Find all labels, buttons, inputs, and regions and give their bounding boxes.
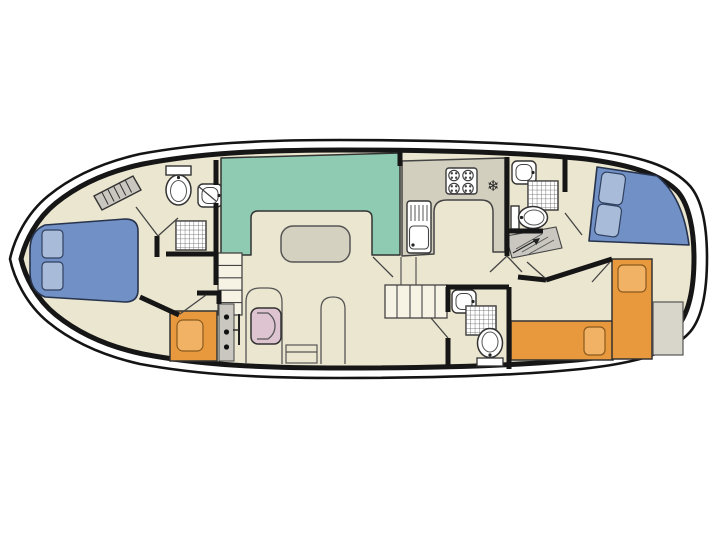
galley-sink bbox=[407, 201, 431, 253]
shower bbox=[528, 181, 558, 210]
helm-chair bbox=[251, 308, 281, 344]
galley-stairs bbox=[385, 285, 447, 318]
bed-pillow bbox=[584, 327, 605, 355]
freezer-snowflake-icon: ❄ bbox=[487, 177, 500, 195]
toilet bbox=[511, 206, 548, 229]
dinette bbox=[221, 153, 400, 262]
toilet bbox=[477, 329, 503, 367]
boat-floor-plan-canvas: ❄ bbox=[0, 0, 720, 541]
toilet bbox=[166, 166, 191, 205]
bed-pillow bbox=[618, 265, 646, 292]
aft-bed-pillow bbox=[594, 203, 622, 237]
bow-bed-pillow bbox=[42, 262, 63, 290]
shower bbox=[176, 221, 206, 250]
aft-storage-block bbox=[653, 302, 683, 355]
saloon-bench-cushion bbox=[177, 320, 203, 351]
bow-bed-pillow bbox=[42, 230, 63, 258]
boat-floor-plan: ❄ bbox=[0, 0, 720, 541]
dinette-table bbox=[281, 226, 350, 262]
stove bbox=[446, 168, 477, 194]
aft-bed-pillow bbox=[598, 171, 626, 205]
